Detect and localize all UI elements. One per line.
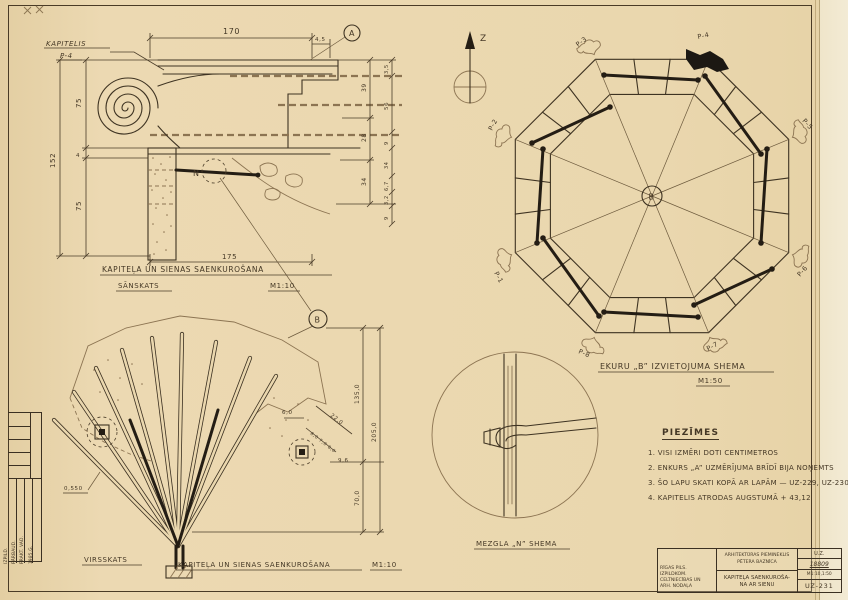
anchor-hook <box>484 418 596 449</box>
dim-6-0: 6,0 <box>282 410 293 416</box>
sheet-number-cell: UZ-231 <box>798 580 842 592</box>
org-line-3: ARH. NODAĻA <box>660 584 714 590</box>
marker-a-label: A <box>349 29 355 38</box>
dim-top <box>147 33 330 58</box>
capital-callout-num: P-4 <box>60 52 73 60</box>
stamp-row-2: PĀRBAUD. <box>12 540 17 564</box>
dim-o4: 34 <box>384 161 390 169</box>
code-cell: U.Z. <box>798 549 842 559</box>
anchor-node-right <box>289 439 315 465</box>
label-p1: P-1 <box>492 270 505 284</box>
label-p6: P-6 <box>796 264 810 278</box>
dim-170: 170 <box>223 27 240 36</box>
notes-panel: PIEZĪMES 1. VISI IZMĒRI DOTI CENTIMETROS… <box>648 420 848 506</box>
stamp-row-3: PRAKT. VAD. <box>20 536 25 564</box>
title-block-right: U.Z. 18809 M1:10,1:50 UZ-231 <box>798 549 842 592</box>
title-block-mid: ARHITEKTŪRAS PIEMINEKLIS PĒTERA BAZNĪCA … <box>717 549 797 592</box>
octagon-center-label: B <box>649 193 655 202</box>
subject-cell: KAPITEĻA SAENKUROŠA- NA AR SIENU <box>717 571 796 592</box>
north-label: Z <box>480 34 487 44</box>
dim-o5: 6,7 <box>384 181 390 191</box>
dim-75b: 75 <box>75 201 83 211</box>
monument-line-2: PĒTERA BAZNĪCA <box>737 560 777 567</box>
stone-blobs <box>232 158 330 214</box>
marker-n-label: N <box>193 169 200 178</box>
number-cell: 18809 <box>798 559 842 570</box>
dim-205-0: 205,0 <box>371 422 378 442</box>
dim-28: 28 <box>361 133 368 142</box>
scale-cell: M1:10,1:50 <box>798 570 842 580</box>
dim-175: 175 <box>222 253 237 261</box>
side-view-scale: M1:10 <box>270 282 295 290</box>
side-view-title: KAPITEĻA UN SIENAS SAENKUROŠANA <box>102 265 264 275</box>
plan-view-scale: M1:10 <box>372 561 397 569</box>
note-item-3: 3. ŠO LAPU SKATI KOPĀ AR LAPĀM — UZ-229,… <box>648 476 848 491</box>
note-item-1: 1. VISI IZMĒRI DOTI CENTIMETROS <box>648 446 848 461</box>
dim-70-0: 70,0 <box>354 490 361 506</box>
dim-4: 4 <box>76 153 80 159</box>
dim-34i: 34 <box>361 177 368 186</box>
node-detail-drawing: MEZGLA „N” SHEMA <box>420 340 620 565</box>
dim-o1: 3,5 <box>384 64 390 74</box>
side-view-subtitle: SĀNSKATS <box>118 281 159 290</box>
stamp-row-1: IZPILD. <box>4 547 9 564</box>
revision-stamp: IZPILD. PĀRBAUD. PRAKT. VAD. 1985.G. <box>8 412 42 562</box>
subject-line-2: NA AR SIENU <box>739 582 774 589</box>
octagon-title: EKURU „B” IZVIETOJUMA SHEMA <box>600 362 745 371</box>
octagon-scale: M1:50 <box>698 377 723 385</box>
dim-75a: 75 <box>75 98 83 108</box>
side-view-drawing: KAPITELIS P-4 <box>30 8 430 338</box>
paper-edge-strip <box>819 0 848 600</box>
label-p3: P-3 <box>574 35 588 49</box>
drawing-sheet: KAPITELIS P-4 <box>0 0 848 600</box>
volute-spiral <box>98 78 158 134</box>
org-line-1: RĪGAS PILS. IZPILDKOM. <box>660 566 714 578</box>
strut-fan <box>54 334 276 578</box>
echinus-outline <box>158 74 220 148</box>
dim-39: 39 <box>361 83 368 92</box>
dim-22-0: 22,0 <box>329 413 344 427</box>
note-item-2: 2. ENKURS „A” UZMĒRĪJUMA BRĪDĪ BIJA NOŅE… <box>648 461 848 476</box>
plan-view-drawing: 6,0 22,0 8,0 7,0 8,0 9,6 135,0 70,0 205,… <box>30 300 405 580</box>
node-detail-title: MEZGLA „N” SHEMA <box>476 540 557 548</box>
monument-cell: ARHITEKTŪRAS PIEMINEKLIS PĒTERA BAZNĪCA <box>717 549 796 571</box>
label-p2: P-2 <box>487 118 500 132</box>
plan-view-title: KAPITEĻA UN SIENAS SAENKUROŠANA <box>178 560 330 570</box>
title-block: RĪGAS PILS. IZPILDKOM. CELTNIECĪBAS UN A… <box>657 548 842 593</box>
wall-pillar <box>148 148 176 260</box>
dim-o7: 9 <box>384 216 390 220</box>
capital-callout-label: KAPITELIS <box>46 40 86 48</box>
note-item-4: 4. KAPITELIS ATRODAS AUGSTUMĀ + 43,12 <box>648 491 848 506</box>
plan-view-label: VIRSSKATS <box>84 556 127 564</box>
stamp-year: 1985.G. <box>29 546 34 564</box>
label-p5: P-5 <box>801 117 815 131</box>
label-p4: P-4 <box>697 31 710 41</box>
dim-45: 4,5 <box>315 37 326 43</box>
dim-row: 8,0 7,0 8,0 <box>309 431 337 455</box>
dim-0-550: 0,550 <box>64 486 83 492</box>
dim-o2: 56 <box>384 102 390 110</box>
dim-o3: 9 <box>384 141 390 145</box>
title-block-org: RĪGAS PILS. IZPILDKOM. CELTNIECĪBAS UN A… <box>658 549 717 592</box>
dim-o6: 3,2 <box>384 195 390 205</box>
north-compass: Z <box>454 31 487 103</box>
stone-outline <box>70 316 326 418</box>
dim-9-6: 9,6 <box>338 458 349 464</box>
dim-135-0: 135,0 <box>354 384 361 404</box>
notes-heading: PIEZĪMES <box>662 428 719 440</box>
anchor-p4-black <box>686 49 729 72</box>
dim-152: 152 <box>49 153 57 168</box>
